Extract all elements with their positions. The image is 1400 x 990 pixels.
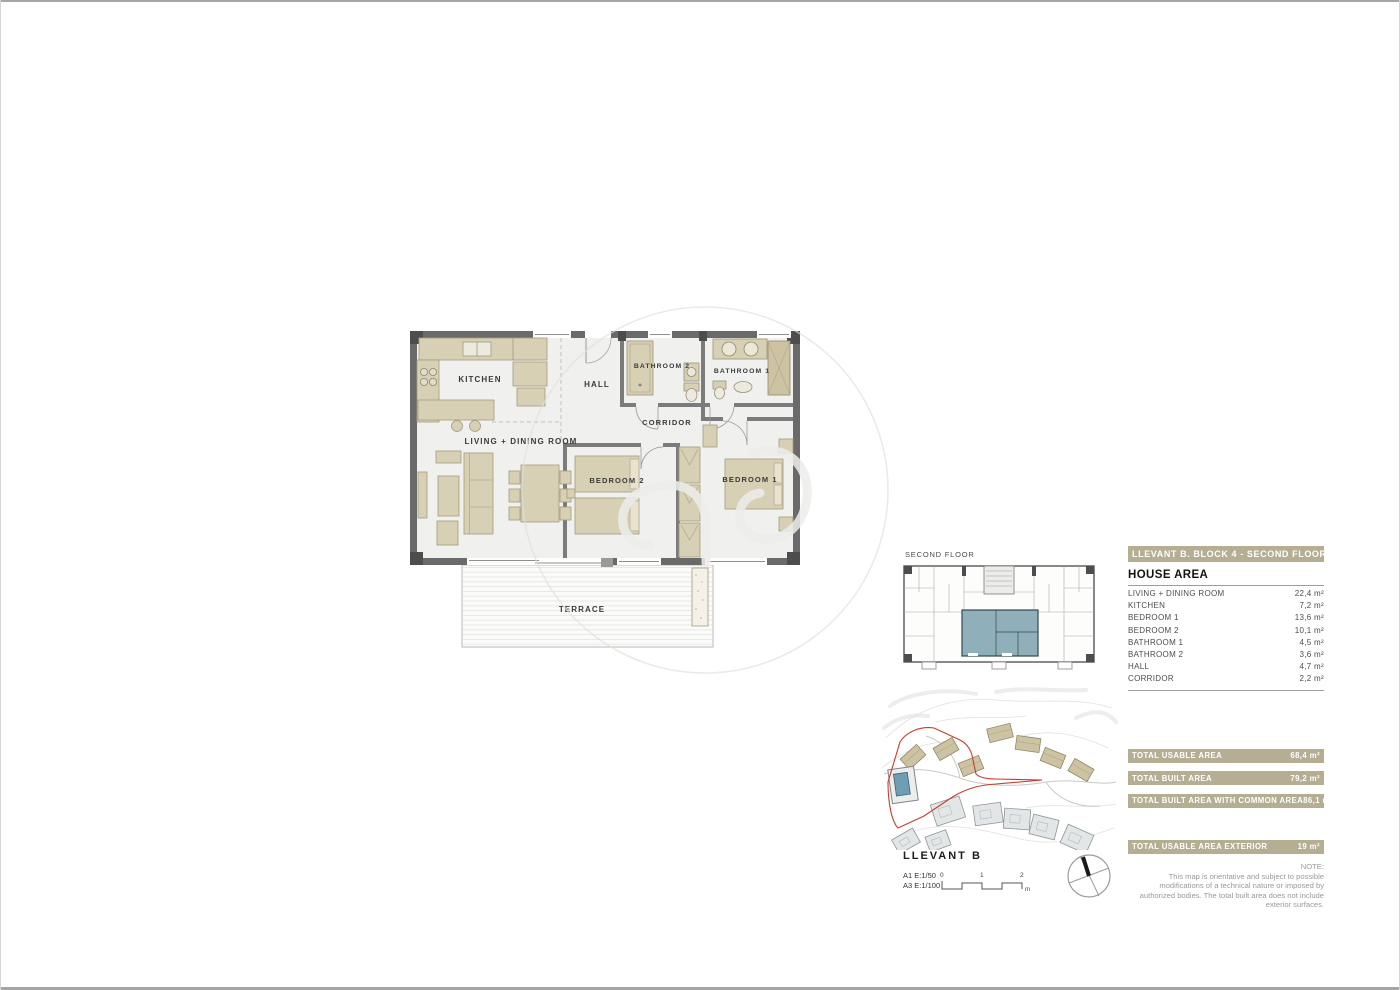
site-plan bbox=[876, 678, 1120, 850]
sheet-top-border bbox=[0, 0, 1400, 2]
project-name: LLEVANT B bbox=[903, 850, 982, 862]
row-label: BEDROOM 2 bbox=[1128, 625, 1179, 637]
plan-sheet: KITCHEN HALL BATHROOM 2 BATHROOM 1 CORRI… bbox=[0, 0, 1400, 990]
totals-block: TOTAL USABLE AREA 68,4 m² TOTAL BUILT AR… bbox=[1128, 749, 1324, 854]
tv-unit bbox=[418, 472, 427, 518]
wardrobes bbox=[679, 447, 700, 557]
row-value: 3,6 m² bbox=[1300, 649, 1324, 661]
row-label: BEDROOM 1 bbox=[1128, 612, 1179, 624]
row-value: 4,5 m² bbox=[1300, 637, 1324, 649]
planter bbox=[692, 568, 708, 626]
row-value: 7,2 m² bbox=[1300, 600, 1324, 612]
table-row: CORRIDOR2,2 m² bbox=[1128, 673, 1324, 685]
side-table bbox=[436, 451, 461, 463]
pool-block bbox=[888, 766, 918, 803]
total-usable-exterior-bar: TOTAL USABLE AREA EXTERIOR 19 m² bbox=[1128, 840, 1324, 854]
table-top-rule bbox=[1128, 585, 1324, 586]
scale-tick-0: 0 bbox=[940, 872, 944, 879]
table-row: BEDROOM 210,1 m² bbox=[1128, 625, 1324, 637]
stair-core bbox=[984, 566, 1014, 594]
total-value: 79,2 m² bbox=[1290, 774, 1320, 783]
total-label: TOTAL USABLE AREA bbox=[1132, 751, 1222, 760]
table-row: KITCHEN7,2 m² bbox=[1128, 600, 1324, 612]
room-label-kitchen: KITCHEN bbox=[458, 375, 501, 384]
keyplan bbox=[898, 562, 1103, 680]
row-value: 2,2 m² bbox=[1300, 673, 1324, 685]
sofa bbox=[464, 453, 493, 534]
house-area-table: LIVING + DINING ROOM22,4 m² KITCHEN7,2 m… bbox=[1128, 588, 1324, 686]
highlighted-unit bbox=[962, 610, 1038, 656]
sheet-left-border bbox=[0, 0, 1, 990]
total-value: 86,1 m² bbox=[1303, 796, 1333, 805]
room-label-bedroom2: BEDROOM 2 bbox=[589, 476, 644, 485]
total-label: TOTAL BUILT AREA bbox=[1132, 774, 1212, 783]
coffee-table bbox=[438, 476, 459, 516]
nightstand bbox=[779, 517, 793, 531]
double-bed bbox=[725, 459, 783, 509]
total-label: TOTAL BUILT AREA WITH COMMON AREA bbox=[1132, 796, 1303, 805]
pouf bbox=[437, 521, 458, 545]
total-built-common-area-bar: TOTAL BUILT AREA WITH COMMON AREA 86,1 m… bbox=[1128, 794, 1324, 808]
room-label-hall: HALL bbox=[584, 380, 610, 389]
scale-unit: m bbox=[1025, 887, 1030, 893]
scale-a3: A3 E:1/100 bbox=[903, 881, 940, 891]
row-value: 22,4 m² bbox=[1295, 588, 1324, 600]
note-heading: NOTE: bbox=[1128, 862, 1324, 872]
total-built-area-bar: TOTAL BUILT AREA 79,2 m² bbox=[1128, 771, 1324, 785]
table-row: BATHROOM 23,6 m² bbox=[1128, 649, 1324, 661]
dining-table bbox=[509, 465, 571, 522]
single-bed bbox=[575, 498, 639, 534]
vegetation bbox=[884, 689, 1116, 728]
room-label-bedroom1: BEDROOM 1 bbox=[722, 475, 777, 484]
panel-title-bar: LLEVANT B. BLOCK 4 - SECOND FLOOR 2nd bbox=[1128, 546, 1324, 562]
house-area-heading: HOUSE AREA bbox=[1128, 569, 1324, 581]
total-usable-area-bar: TOTAL USABLE AREA 68,4 m² bbox=[1128, 749, 1324, 763]
floor-plan: KITCHEN HALL BATHROOM 2 BATHROOM 1 CORRI… bbox=[405, 325, 825, 665]
table-row: BATHROOM 14,5 m² bbox=[1128, 637, 1324, 649]
total-value: 68,4 m² bbox=[1290, 751, 1320, 760]
scale-notes: A1 E:1/50 A3 E:1/100 bbox=[903, 871, 940, 890]
total-label: TOTAL USABLE AREA EXTERIOR bbox=[1132, 842, 1267, 851]
info-panel: LLEVANT B. BLOCK 4 - SECOND FLOOR 2nd HO… bbox=[1128, 546, 1324, 910]
row-label: LIVING + DINING ROOM bbox=[1128, 588, 1224, 600]
scale-bar: 0 1 2 m bbox=[938, 869, 1030, 895]
scale-a1: A1 E:1/50 bbox=[903, 871, 940, 881]
site-buildings-gray bbox=[892, 796, 1094, 850]
table-row: LIVING + DINING ROOM22,4 m² bbox=[1128, 588, 1324, 600]
table-row: BEDROOM 113,6 m² bbox=[1128, 612, 1324, 624]
total-value: 19 m² bbox=[1298, 842, 1320, 851]
row-value: 4,7 m² bbox=[1300, 661, 1324, 673]
room-label-bathroom1: BATHROOM 1 bbox=[714, 368, 770, 375]
row-label: HALL bbox=[1128, 661, 1149, 673]
single-bed bbox=[575, 456, 639, 492]
table-bottom-rule bbox=[1128, 690, 1324, 691]
note-body: This map is orientative and subject to p… bbox=[1128, 872, 1324, 910]
balconies bbox=[922, 662, 1072, 669]
dresser bbox=[703, 425, 717, 447]
note-block: NOTE: This map is orientative and subjec… bbox=[1128, 862, 1324, 910]
row-label: KITCHEN bbox=[1128, 600, 1165, 612]
scale-tick-2: 2 bbox=[1020, 872, 1024, 879]
room-label-bathroom2: BATHROOM 2 bbox=[634, 363, 690, 370]
room-label-corridor: CORRIDOR bbox=[642, 418, 692, 427]
row-label: CORRIDOR bbox=[1128, 673, 1174, 685]
room-label-terrace: TERRACE bbox=[559, 605, 605, 614]
row-label: BATHROOM 1 bbox=[1128, 637, 1183, 649]
row-value: 10,1 m² bbox=[1295, 625, 1324, 637]
row-label: BATHROOM 2 bbox=[1128, 649, 1183, 661]
row-value: 13,6 m² bbox=[1295, 612, 1324, 624]
nightstand bbox=[567, 489, 575, 498]
scale-tick-1: 1 bbox=[980, 872, 984, 879]
table-row: HALL4,7 m² bbox=[1128, 661, 1324, 673]
site-buildings-beige bbox=[900, 723, 1094, 781]
compass-icon bbox=[1062, 849, 1116, 903]
nightstand bbox=[779, 439, 793, 453]
room-label-living: LIVING + DINING ROOM bbox=[465, 437, 578, 446]
keyplan-title: SECOND FLOOR bbox=[905, 550, 975, 559]
